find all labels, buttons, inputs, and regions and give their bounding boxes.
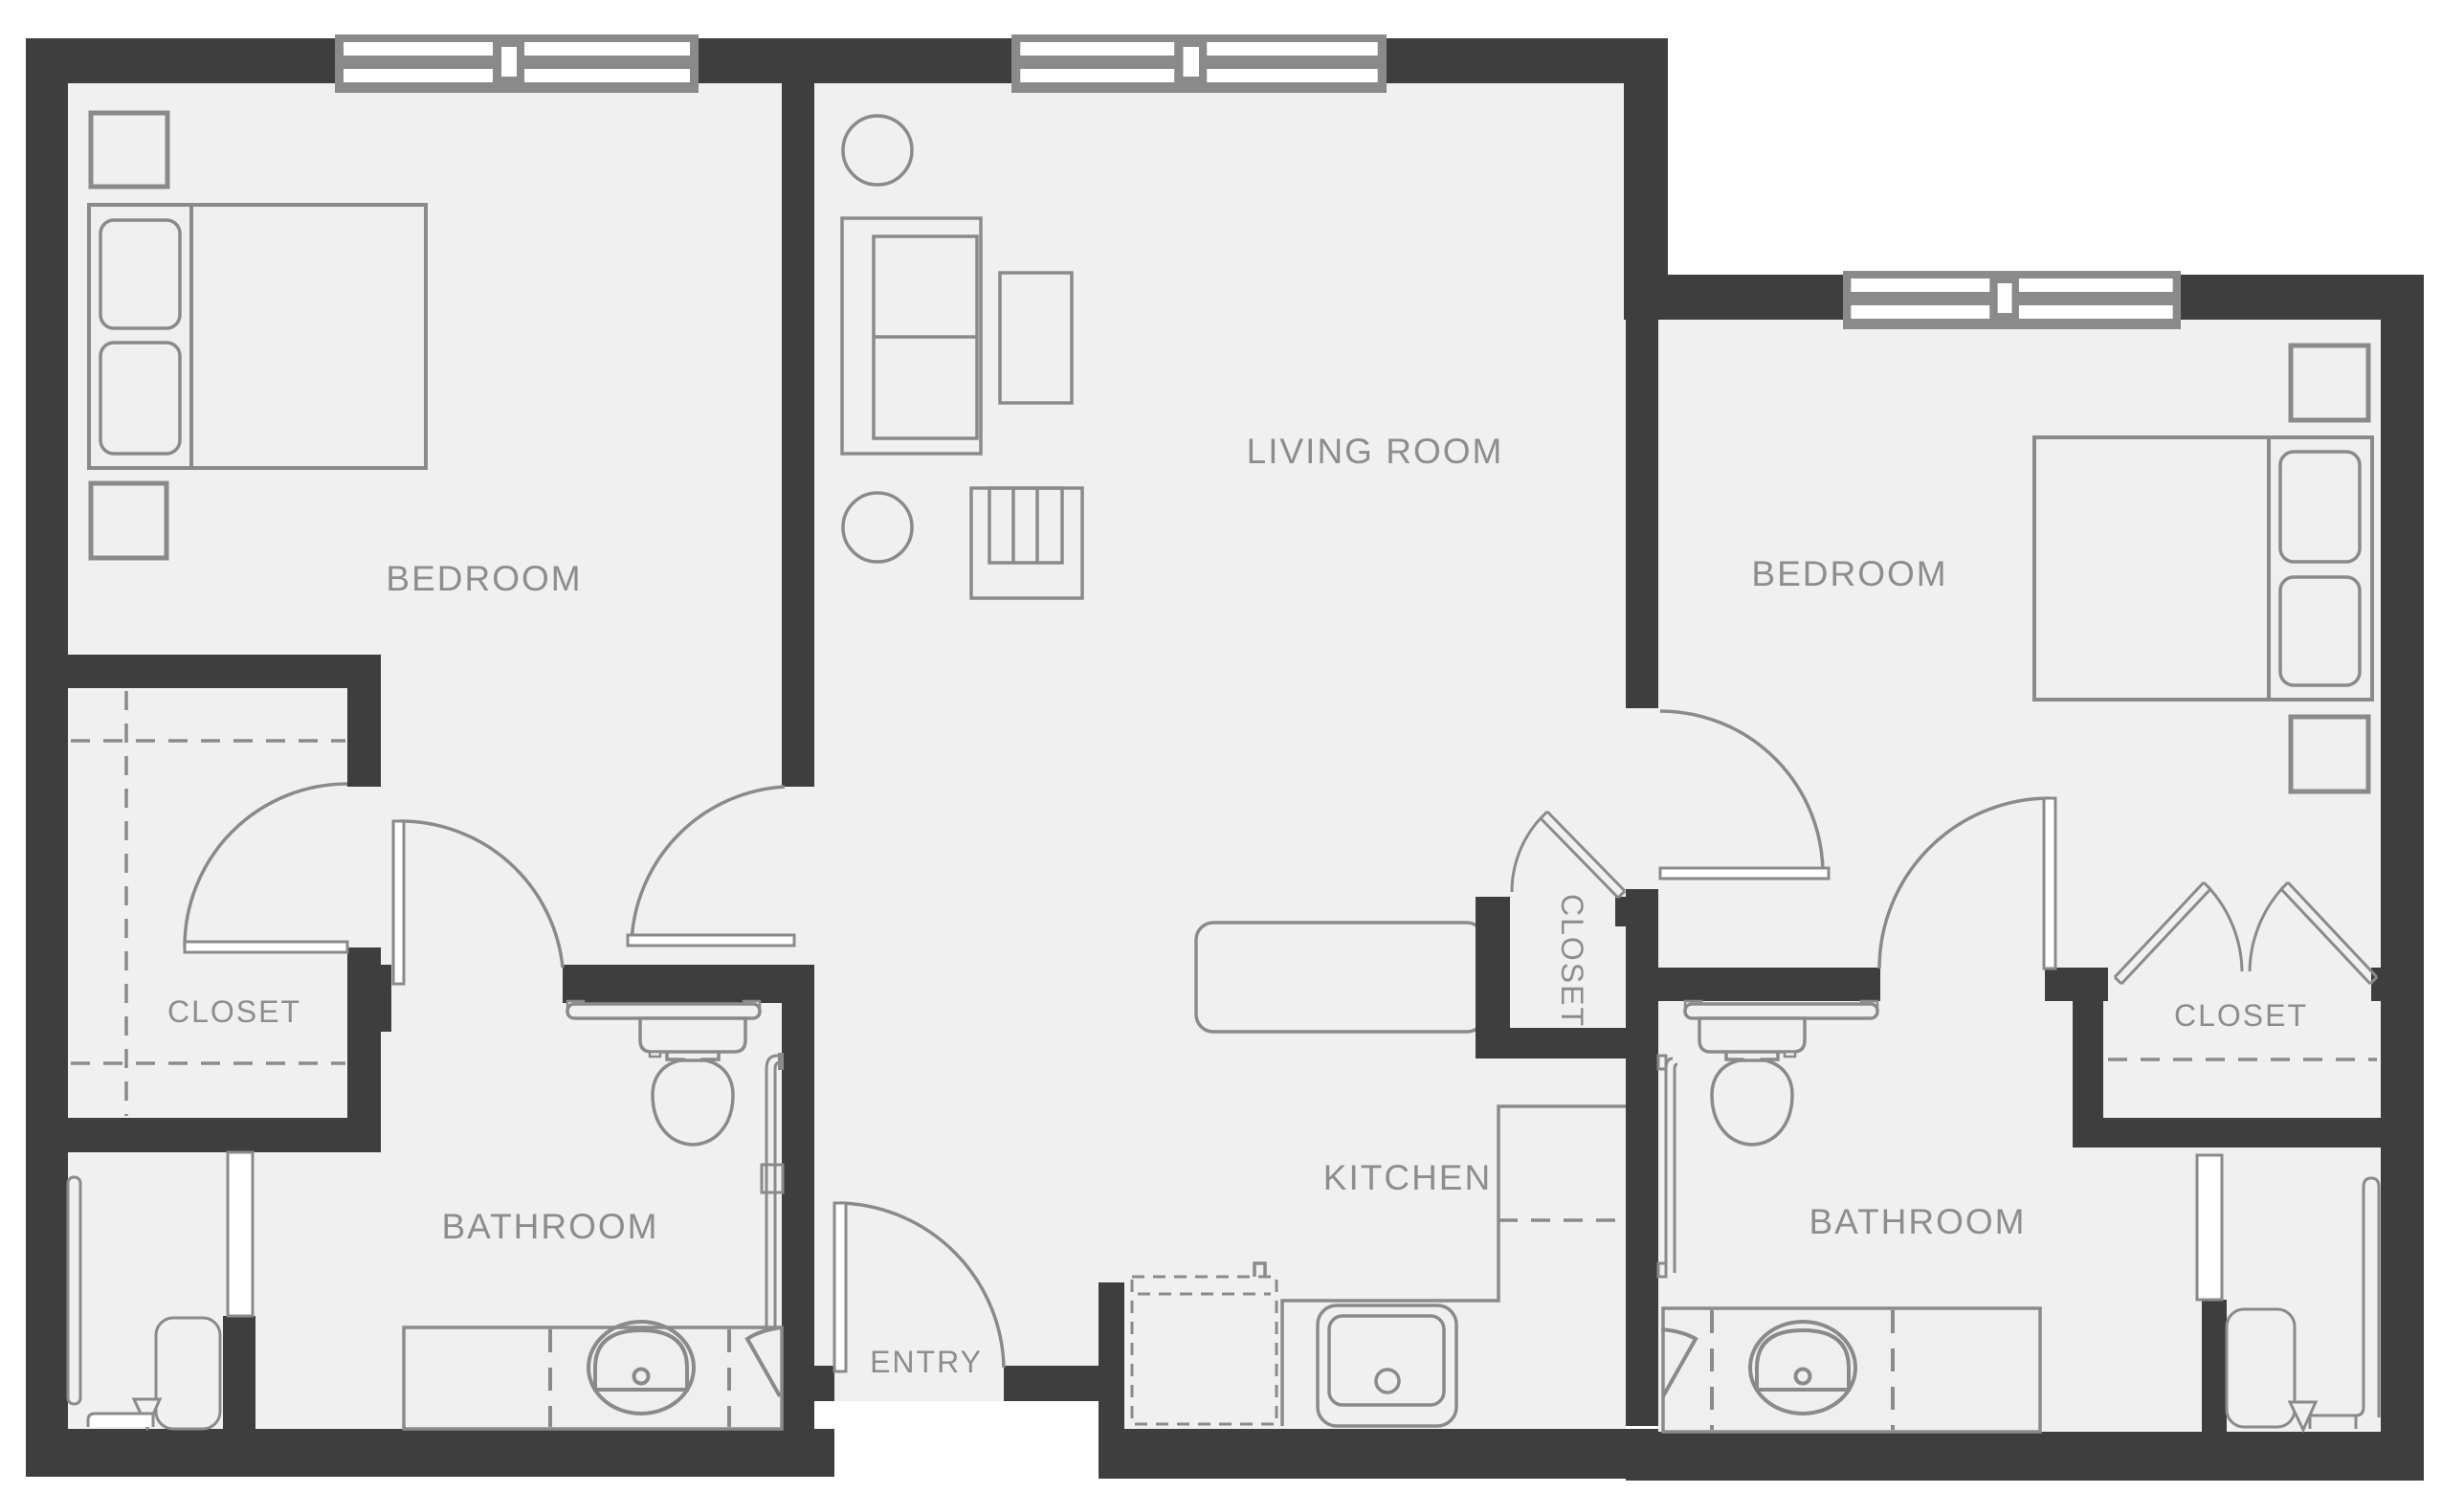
svg-text:LIVING ROOM: LIVING ROOM (1247, 432, 1504, 471)
svg-text:BATHROOM: BATHROOM (1809, 1202, 2026, 1241)
svg-text:CLOSET: CLOSET (2174, 998, 2308, 1033)
svg-text:CLOSET: CLOSET (167, 994, 301, 1029)
svg-text:ENTRY: ENTRY (870, 1345, 983, 1379)
svg-text:KITCHEN: KITCHEN (1323, 1158, 1492, 1197)
svg-text:CLOSET: CLOSET (1555, 894, 1589, 1028)
svg-text:BEDROOM: BEDROOM (386, 559, 582, 598)
svg-text:BEDROOM: BEDROOM (1751, 554, 1947, 593)
svg-text:BATHROOM: BATHROOM (441, 1207, 658, 1246)
